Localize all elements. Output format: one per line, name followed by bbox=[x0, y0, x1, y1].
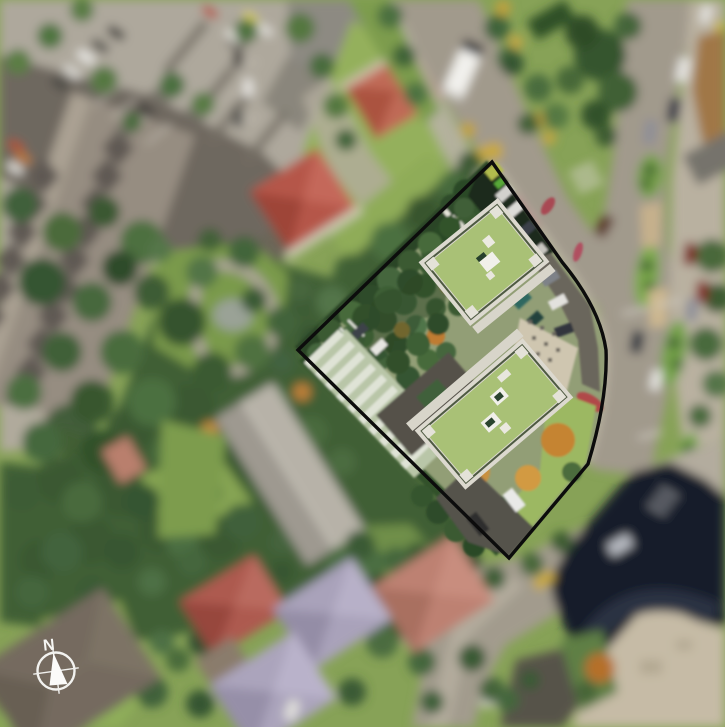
svg-text:N: N bbox=[42, 637, 55, 655]
